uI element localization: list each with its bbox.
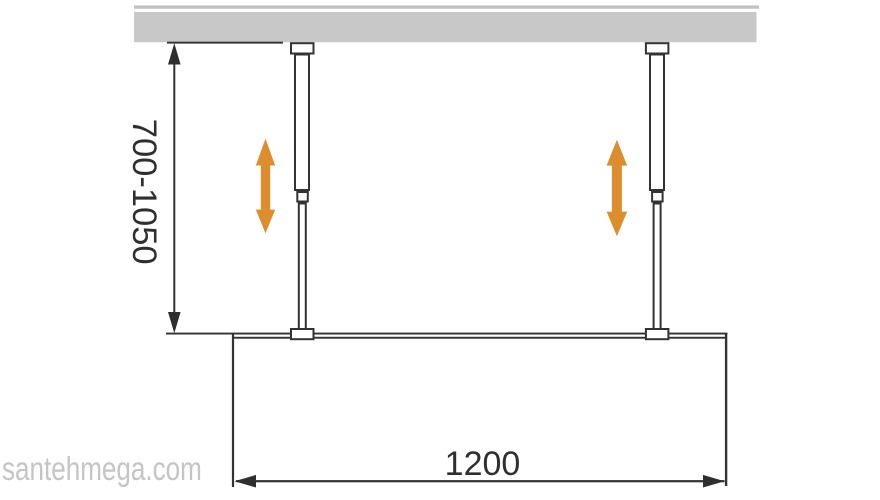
svg-text:700-1050: 700-1050 — [125, 119, 163, 265]
svg-text:1200: 1200 — [445, 445, 521, 483]
svg-text:santehmega.com: santehmega.com — [2, 451, 202, 488]
